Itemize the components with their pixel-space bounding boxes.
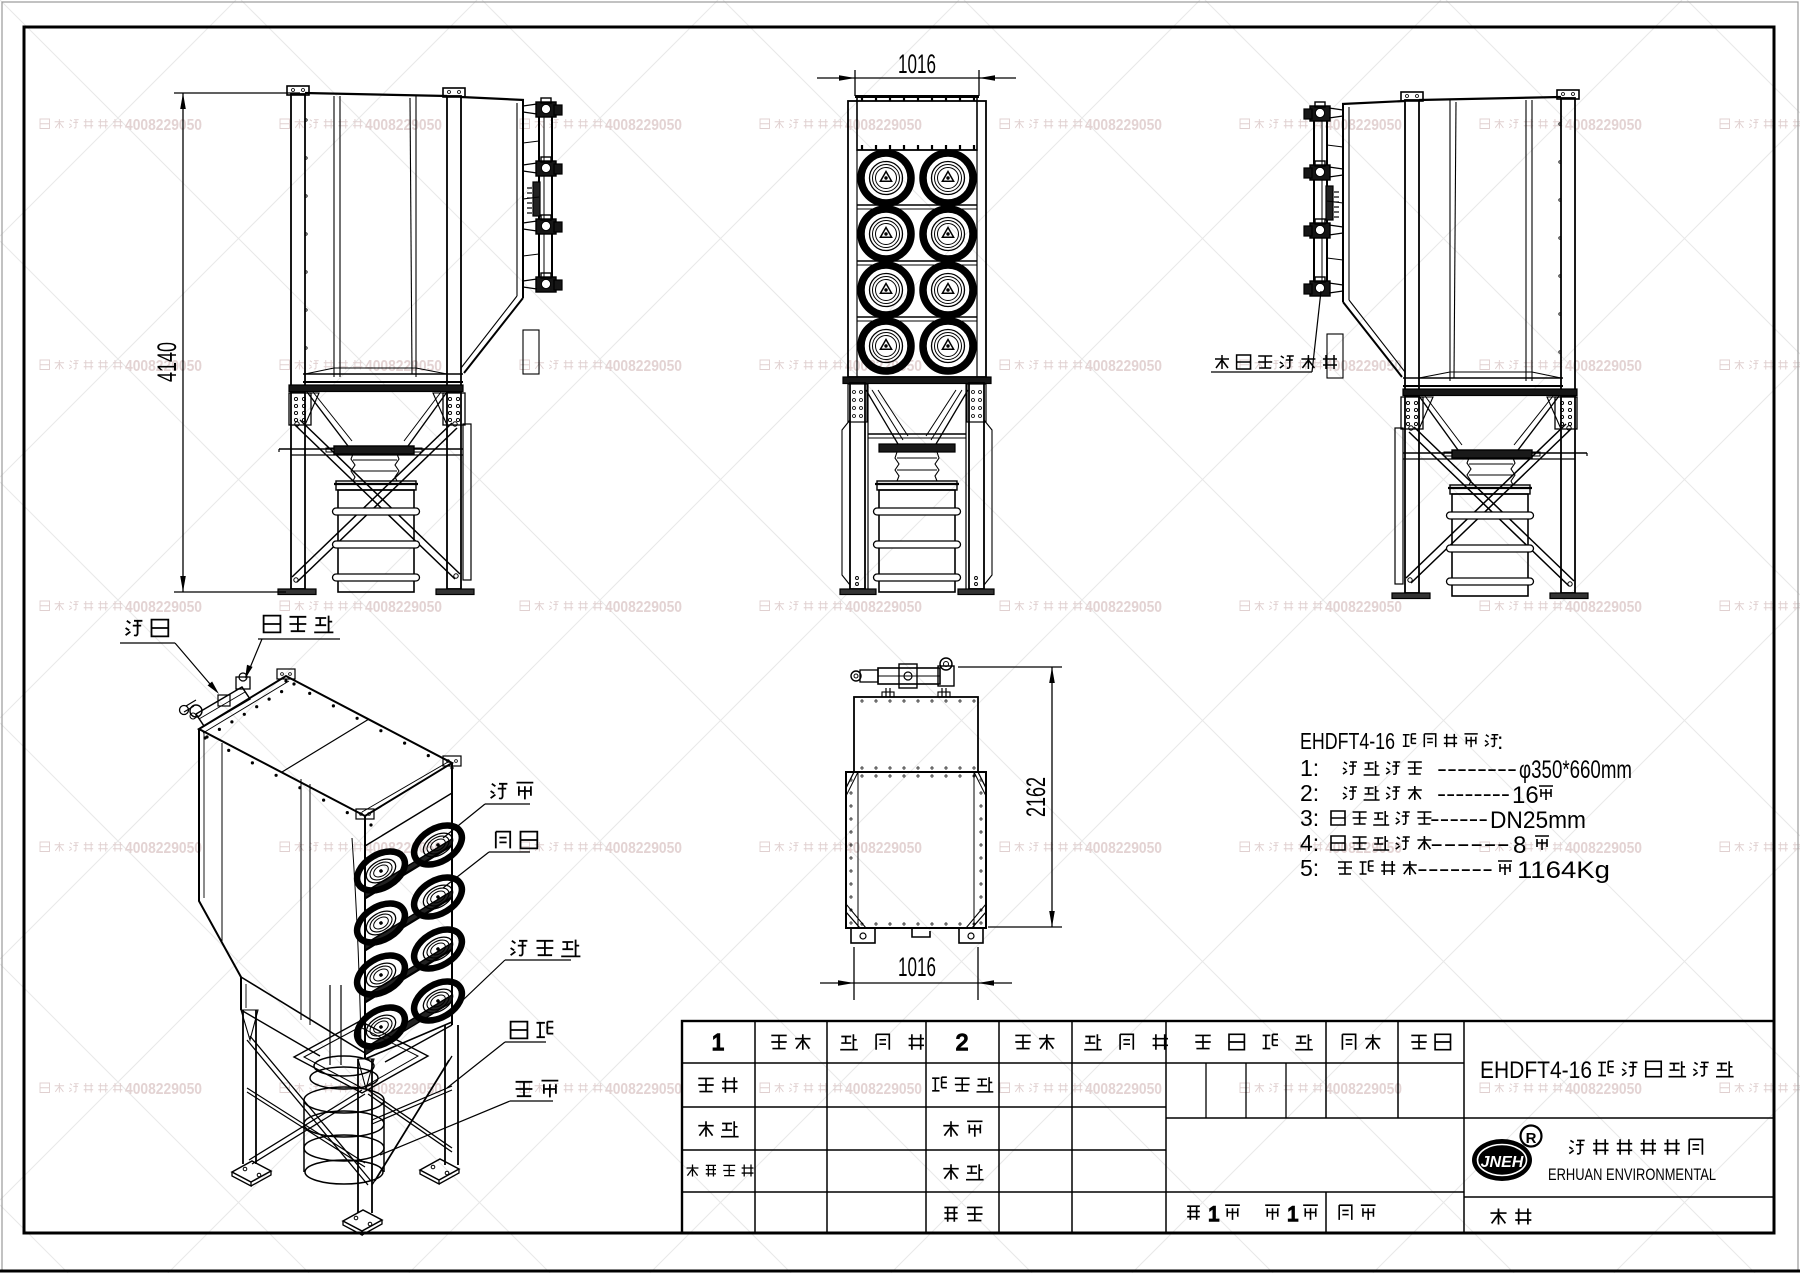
svg-text:4008229050: 4008229050 — [125, 840, 202, 857]
svg-text:4140: 4140 — [152, 342, 182, 382]
svg-text:------: ------ — [1430, 806, 1488, 831]
svg-text:4008229050: 4008229050 — [1085, 117, 1162, 134]
svg-text:ERHUAN ENVIRONMENTAL: ERHUAN ENVIRONMENTAL — [1548, 1165, 1716, 1184]
svg-text:4008229050: 4008229050 — [365, 599, 442, 616]
svg-text:R: R — [1526, 1130, 1537, 1147]
svg-text:1:: 1: — [1300, 755, 1319, 781]
svg-text:4008229050: 4008229050 — [1325, 599, 1402, 616]
svg-text:4008229050: 4008229050 — [1565, 599, 1642, 616]
svg-text:4008229050: 4008229050 — [1565, 117, 1642, 134]
svg-text:4008229050: 4008229050 — [605, 358, 682, 375]
svg-text:4008229050: 4008229050 — [605, 599, 682, 616]
svg-text:4008229050: 4008229050 — [845, 840, 922, 857]
svg-text:2: 2 — [956, 1029, 969, 1055]
svg-text:EHDFT4-16: EHDFT4-16 — [1480, 1057, 1592, 1084]
svg-text:4008229050: 4008229050 — [845, 599, 922, 616]
svg-text:4:: 4: — [1300, 830, 1319, 856]
svg-text:4008229050: 4008229050 — [605, 117, 682, 134]
svg-text:4008229050: 4008229050 — [605, 1081, 682, 1098]
svg-text:4008229050: 4008229050 — [1325, 358, 1402, 375]
svg-text:4008229050: 4008229050 — [1565, 358, 1642, 375]
svg-text:4008229050: 4008229050 — [1085, 1081, 1162, 1098]
svg-text:1: 1 — [712, 1029, 725, 1055]
svg-text:--------: -------- — [1437, 756, 1517, 781]
svg-text:4008229050: 4008229050 — [1325, 117, 1402, 134]
svg-text:------: ------ — [1430, 831, 1510, 856]
svg-text:--------: -------- — [1437, 781, 1510, 806]
svg-text:φ350*660mm: φ350*660mm — [1519, 756, 1632, 784]
svg-text:16: 16 — [1512, 782, 1539, 809]
svg-text:4008229050: 4008229050 — [125, 599, 202, 616]
svg-text:1016: 1016 — [898, 952, 936, 982]
svg-text:JNEH: JNEH — [1481, 1154, 1524, 1171]
svg-text:1164Kg: 1164Kg — [1517, 857, 1610, 884]
svg-text:4008229050: 4008229050 — [125, 117, 202, 134]
svg-text:1: 1 — [1208, 1203, 1220, 1226]
svg-text:4008229050: 4008229050 — [1085, 599, 1162, 616]
svg-text:4008229050: 4008229050 — [1085, 358, 1162, 375]
svg-text:4008229050: 4008229050 — [605, 840, 682, 857]
svg-text:4008229050: 4008229050 — [1085, 840, 1162, 857]
svg-text:1: 1 — [1287, 1203, 1299, 1226]
svg-text:4008229050: 4008229050 — [365, 358, 442, 375]
svg-text:DN25mm: DN25mm — [1490, 807, 1586, 834]
svg-text:2:: 2: — [1300, 780, 1319, 806]
svg-text::: : — [1497, 728, 1503, 754]
svg-text:4008229050: 4008229050 — [125, 1081, 202, 1098]
svg-text:5:: 5: — [1300, 855, 1319, 881]
svg-text:4008229050: 4008229050 — [1325, 1081, 1402, 1098]
svg-text:8: 8 — [1513, 832, 1526, 859]
svg-text:2162: 2162 — [1021, 777, 1051, 817]
svg-text:4008229050: 4008229050 — [365, 117, 442, 134]
svg-text:-------: ------- — [1417, 856, 1493, 881]
svg-text:4008229050: 4008229050 — [1565, 840, 1642, 857]
svg-text:EHDFT4-16: EHDFT4-16 — [1300, 728, 1395, 754]
svg-text:1016: 1016 — [898, 49, 936, 79]
svg-text:3:: 3: — [1300, 805, 1319, 831]
svg-text:4008229050: 4008229050 — [845, 1081, 922, 1098]
